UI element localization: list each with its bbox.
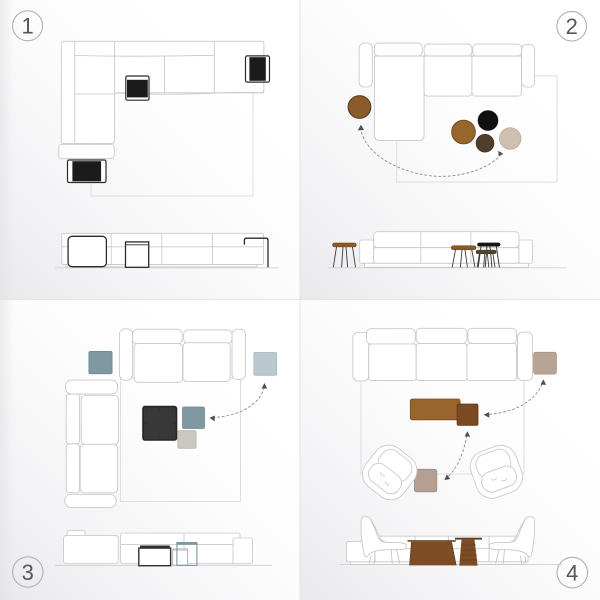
svg-text:1: 1	[21, 14, 33, 39]
svg-text:4: 4	[566, 561, 578, 586]
svg-text:3: 3	[22, 560, 34, 585]
svg-text:2: 2	[566, 14, 578, 39]
